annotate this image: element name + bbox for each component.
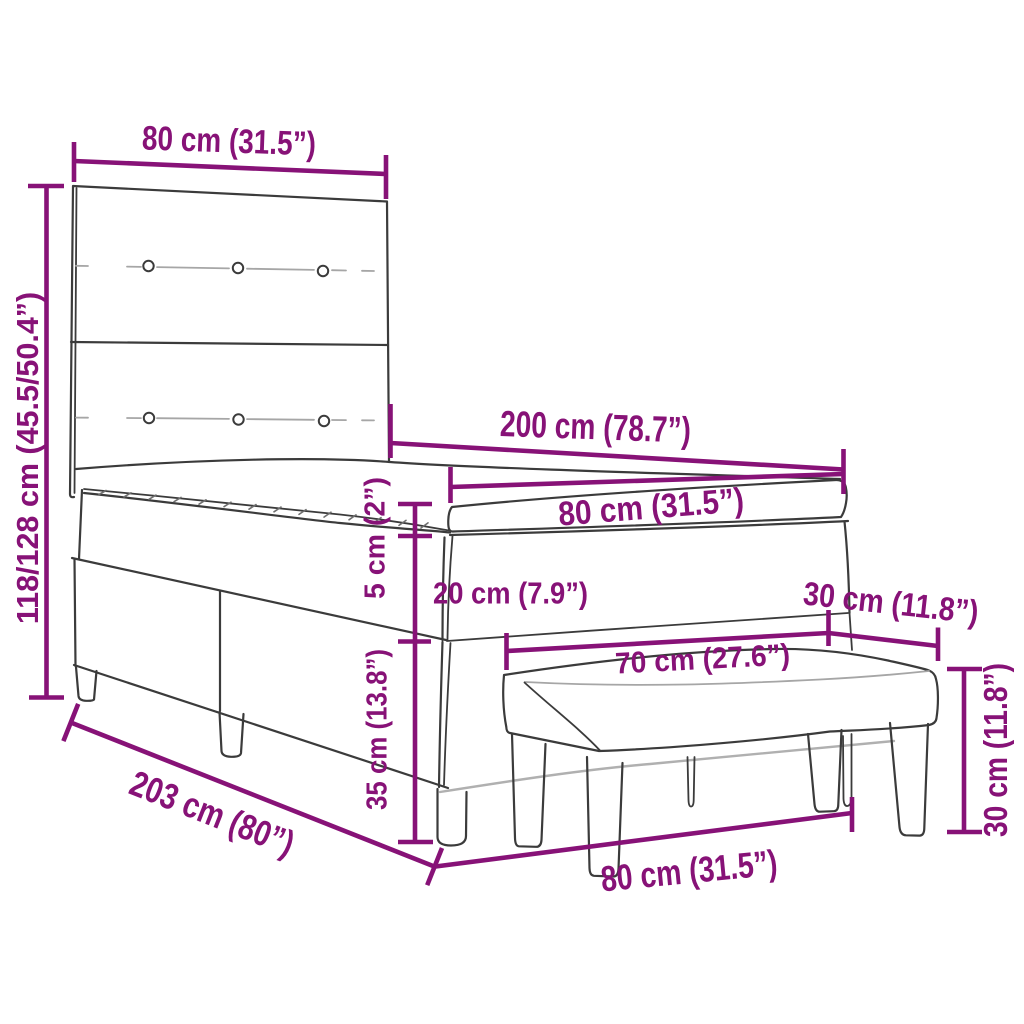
svg-text:118/128 cm (45.5/50.4”): 118/128 cm (45.5/50.4”): [11, 292, 45, 624]
svg-text:35 cm (13.8”): 35 cm (13.8”): [361, 649, 393, 810]
svg-text:5 cm (2”): 5 cm (2”): [359, 477, 391, 599]
svg-text:80 cm (31.5”): 80 cm (31.5”): [141, 119, 316, 163]
svg-text:20 cm (7.9”): 20 cm (7.9”): [433, 575, 588, 610]
svg-text:200 cm (78.7”): 200 cm (78.7”): [499, 403, 691, 451]
svg-text:30 cm (11.8”): 30 cm (11.8”): [977, 663, 1014, 837]
